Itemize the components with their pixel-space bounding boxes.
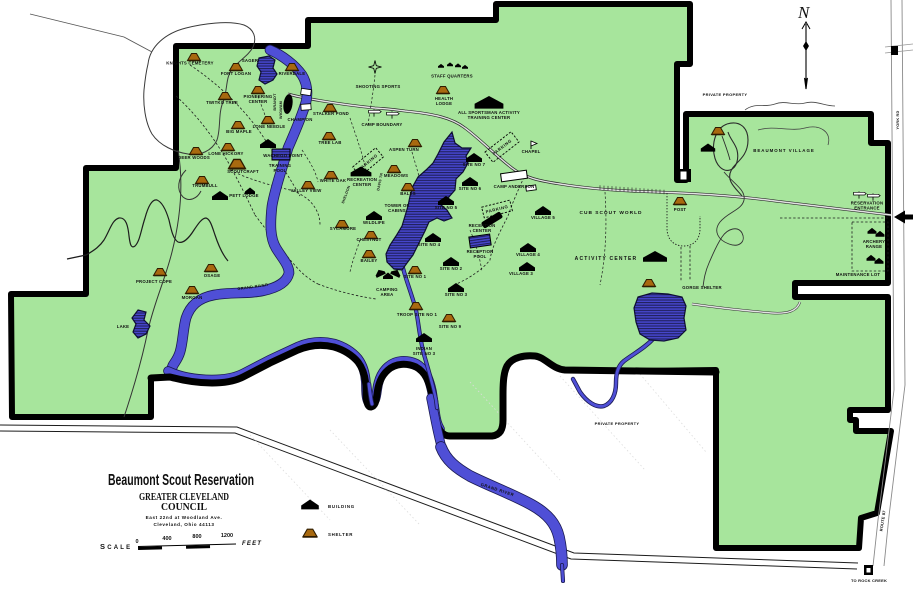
svg-text:POST: POST [674, 207, 687, 212]
svg-text:CABINS: CABINS [388, 208, 406, 213]
svg-text:OSAGE: OSAGE [204, 273, 221, 278]
svg-text:Cleveland, Ohio 44113: Cleveland, Ohio 44113 [153, 522, 214, 527]
svg-text:YORK RD: YORK RD [896, 110, 900, 129]
svg-text:SITE NO 3: SITE NO 3 [413, 351, 436, 356]
svg-text:SITE NO 5: SITE NO 5 [435, 205, 458, 210]
svg-text:BAILEY: BAILEY [361, 258, 378, 263]
svg-text:TRAINING CENTER: TRAINING CENTER [468, 115, 511, 120]
svg-text:PROJECT COPE: PROJECT COPE [136, 279, 172, 284]
svg-text:LONE NEEDLE: LONE NEEDLE [253, 124, 286, 129]
svg-text:POOL: POOL [274, 168, 287, 173]
svg-text:CENTER: CENTER [249, 99, 269, 104]
svg-text:0: 0 [135, 539, 138, 545]
svg-text:BALES: BALES [400, 191, 416, 196]
svg-text:MORGAN: MORGAN [182, 295, 203, 300]
svg-text:ASPEN TURN: ASPEN TURN [389, 147, 419, 152]
svg-text:LODGE: LODGE [436, 101, 452, 106]
svg-text:East 22nd at Woodland Ave.: East 22nd at Woodland Ave. [146, 515, 223, 520]
svg-text:CHESTNUT: CHESTNUT [357, 237, 382, 242]
svg-text:STAFF QUARTERS: STAFF QUARTERS [431, 74, 473, 79]
svg-text:SITE NO 2: SITE NO 2 [440, 266, 463, 271]
svg-text:SHOOTING SPORTS: SHOOTING SPORTS [356, 84, 401, 89]
svg-text:WILDLIFE: WILDLIFE [363, 220, 385, 225]
svg-text:CHAMPION: CHAMPION [288, 117, 313, 122]
svg-text:ACTIVITY CENTER: ACTIVITY CENTER [575, 256, 638, 262]
svg-text:MAINTENANCE LOT: MAINTENANCE LOT [836, 272, 881, 277]
svg-text:LONE HICKORY: LONE HICKORY [208, 151, 243, 156]
svg-text:MEADOWS: MEADOWS [384, 173, 408, 178]
svg-text:PRIVATE PROPERTY: PRIVATE PROPERTY [703, 92, 748, 97]
svg-text:800: 800 [192, 534, 201, 540]
svg-text:TO ROCK CREEK: TO ROCK CREEK [851, 578, 887, 583]
svg-text:SCALE: SCALE [100, 542, 132, 551]
svg-text:AREA: AREA [381, 292, 394, 297]
svg-text:BRANDT: BRANDT [273, 93, 277, 111]
svg-text:Beaumont Scout Reservation: Beaumont Scout Reservation [108, 472, 254, 489]
svg-text:SITE NO 7: SITE NO 7 [463, 162, 486, 167]
svg-text:STALKER POND: STALKER POND [313, 111, 349, 116]
svg-text:WACHEGO POINT: WACHEGO POINT [263, 153, 303, 158]
svg-text:VILLAGE 4: VILLAGE 4 [516, 252, 540, 257]
svg-text:DEER WOODS: DEER WOODS [178, 155, 210, 160]
svg-text:BUILDING: BUILDING [328, 504, 355, 509]
svg-text:SCOUTCRAFT: SCOUTCRAFT [227, 169, 259, 174]
svg-text:SITE NO 4: SITE NO 4 [418, 242, 441, 247]
svg-text:TRUMBULL: TRUMBULL [192, 183, 218, 188]
svg-text:CENTER: CENTER [353, 182, 373, 187]
svg-text:TREE LAB: TREE LAB [318, 140, 341, 145]
svg-text:400: 400 [162, 536, 171, 542]
svg-text:SHELTER: SHELTER [328, 532, 353, 537]
svg-text:GORGE SHELTER: GORGE SHELTER [682, 285, 722, 290]
svg-text:BEAUMONT VILLAGE: BEAUMONT VILLAGE [753, 148, 815, 153]
svg-text:BIG MAPLE: BIG MAPLE [226, 129, 252, 134]
svg-text:LAKE: LAKE [117, 324, 130, 329]
svg-text:N: N [797, 3, 811, 22]
svg-text:SITE NO 3: SITE NO 3 [445, 292, 468, 297]
svg-text:POOL: POOL [474, 254, 487, 259]
svg-text:SYCAMORE: SYCAMORE [330, 226, 356, 231]
svg-text:PETT LODGE: PETT LODGE [229, 193, 258, 198]
svg-text:CAMP ANDERSON: CAMP ANDERSON [494, 184, 535, 189]
svg-text:WHITE OAK: WHITE OAK [320, 178, 347, 183]
svg-text:RANGE: RANGE [866, 244, 883, 249]
svg-text:SITE NO 1: SITE NO 1 [404, 274, 427, 279]
svg-text:RIVERDALE: RIVERDALE [279, 71, 306, 76]
svg-text:TROOP SITE NO 1: TROOP SITE NO 1 [397, 312, 438, 317]
svg-text:1200: 1200 [221, 533, 233, 539]
svg-text:VALLEY VIEW: VALLEY VIEW [291, 188, 323, 193]
svg-text:FORT LOGAN: FORT LOGAN [221, 71, 251, 76]
svg-text:SITE NO 9: SITE NO 9 [439, 324, 462, 329]
svg-text:CAMP BOUNDARY: CAMP BOUNDARY [361, 122, 402, 127]
svg-text:SITE NO 6: SITE NO 6 [459, 186, 482, 191]
svg-text:SAGER: SAGER [242, 58, 259, 63]
svg-text:KNIGHTS CEMETERY: KNIGHTS CEMETERY [166, 61, 213, 66]
svg-text:FEET: FEET [242, 541, 262, 547]
svg-text:CENTER: CENTER [473, 228, 493, 233]
svg-text:ENTRANCE: ENTRANCE [854, 206, 879, 211]
svg-text:WIGWAM: WIGWAM [279, 101, 283, 119]
svg-text:CUB SCOUT WORLD: CUB SCOUT WORLD [580, 210, 643, 216]
svg-text:PRIVATE PROPERTY: PRIVATE PROPERTY [595, 421, 640, 426]
svg-text:VILLAGE 3: VILLAGE 3 [509, 271, 533, 276]
svg-text:VILLAGE 5: VILLAGE 5 [531, 215, 555, 220]
svg-text:CHAPEL: CHAPEL [522, 149, 541, 154]
svg-text:COUNCIL: COUNCIL [161, 502, 207, 513]
svg-text:TWITKO TREE: TWITKO TREE [206, 100, 238, 105]
